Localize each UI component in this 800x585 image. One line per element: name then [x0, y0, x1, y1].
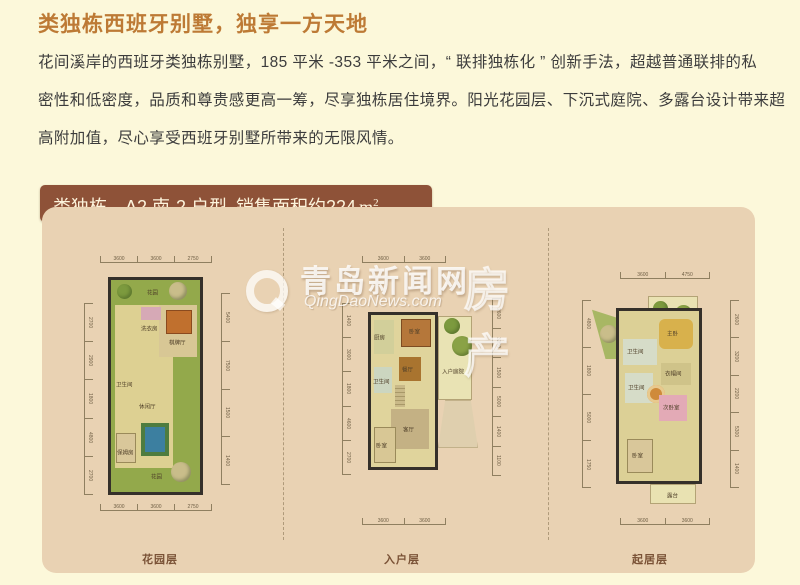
dim-value: 1400: [730, 451, 739, 488]
room-label-bedroom: 卧室: [632, 451, 643, 459]
plan2-dims-left: 1400 3000 1800 4600 2700: [342, 303, 351, 475]
dim-value: 1400: [342, 304, 351, 338]
dim-value: 2750: [175, 256, 212, 263]
dim-value: 1500: [492, 358, 501, 388]
dim-value: 3600: [666, 518, 711, 525]
plan3-dims-left: 4800 1800 5000 1750: [582, 300, 591, 488]
plan1-dims-bottom: 3600 3600 2750: [100, 504, 212, 511]
dim-value: 3200: [492, 329, 501, 359]
terrace-bottom: 露台: [650, 484, 696, 504]
plan2-dims-top: 3600 3600: [362, 256, 446, 263]
dim-value: 5000: [582, 395, 591, 442]
room-label-garden: 花园: [151, 472, 162, 480]
room-label-bedroom: 卧室: [376, 441, 387, 449]
floor-label-garden: 花园层: [130, 551, 190, 567]
plan3-dims-top: 3600 4750: [620, 272, 710, 279]
room-label-garden: 花园: [147, 288, 158, 296]
dim-value: 3600: [101, 504, 138, 511]
dim-value: 1400: [492, 417, 501, 447]
plan3-dims-right: 2600 3200 2200 5300 1400: [730, 300, 739, 488]
intro-line: 高附加值，尽心享受西班牙别墅所带来的无限风情。: [38, 120, 770, 158]
page-title: 类独栋西班牙别墅，独享一方天地: [38, 8, 368, 38]
plan3-dims-bottom: 3600 3600: [620, 518, 710, 525]
room-label-second: 次卧室: [663, 403, 680, 411]
dim-value: 3600: [101, 256, 138, 263]
room-label-lounge: 休闲厅: [139, 402, 156, 410]
page: 类独栋西班牙别墅，独享一方天地 花间溪岸的西班牙类独栋别墅，185 平米 -35…: [0, 0, 800, 585]
dim-value: 5400: [221, 294, 230, 342]
stairs: [395, 385, 405, 407]
plan1-dims-right: 5400 7500 1500 1400: [221, 293, 230, 485]
dim-value: 4600: [342, 407, 351, 441]
dim-value: 5300: [730, 413, 739, 450]
room-laundry-area: [141, 307, 161, 320]
dim-value: 2750: [175, 504, 212, 511]
dim-value: 5000: [492, 388, 501, 418]
room-label-terrace: 露台: [667, 491, 678, 499]
dim-value: 2700: [342, 441, 351, 475]
dim-value: 4800: [582, 301, 591, 348]
plan-separator-line: [283, 228, 284, 540]
dim-value: 1100: [492, 447, 501, 477]
pool: [141, 423, 169, 456]
dim-value: 2200: [730, 376, 739, 413]
plan2-dims-bottom: 3600 3600: [362, 518, 446, 525]
room-label-master: 主卧: [667, 329, 678, 337]
dim-value: 7500: [221, 342, 230, 390]
dim-value: 3000: [342, 338, 351, 372]
tree-icon: [444, 318, 460, 334]
room-label-cloak: 衣帽间: [665, 369, 682, 377]
dim-value: 1400: [221, 437, 230, 485]
dim-value: 1750: [582, 441, 591, 488]
dim-value: 3600: [363, 256, 405, 263]
room-label-living: 客厅: [403, 425, 414, 433]
floorplan-entry-level: 厨房 卧室 餐厅 卫生间 客厅 卧室: [368, 312, 438, 470]
floorplan-living-level: 主卧 卫生间 衣帽间 卫生间 次卧室 卧室: [616, 308, 702, 484]
dim-value: 3600: [621, 272, 666, 279]
room-label-kitchen: 厨房: [374, 333, 385, 341]
room-label-game: 棋牌厅: [169, 338, 186, 346]
floor-label-living: 起居层: [620, 551, 680, 567]
dim-value: 1800: [342, 372, 351, 406]
plan2-dims-right: 2600 3200 1500 5000 1400 1100: [492, 298, 501, 476]
dim-value: 1800: [84, 380, 93, 418]
dim-value: 1500: [221, 390, 230, 438]
plan1-dims-left: 2700 2900 1800 4800 2700: [84, 303, 93, 495]
room-label-dining: 餐厅: [402, 365, 413, 373]
dim-value: 3600: [621, 518, 666, 525]
dim-value: 3600: [405, 518, 447, 525]
game-table: [166, 310, 192, 334]
plan-separator-line: [548, 228, 549, 540]
dim-value: 2700: [84, 457, 93, 495]
floorplan-garden-level: 花园 洗衣房 棋牌厅 卫生间 休闲厅 保姆房 花园: [108, 277, 203, 495]
dim-value: 3200: [730, 338, 739, 375]
dim-value: 3600: [138, 504, 175, 511]
dim-value: 2600: [492, 299, 501, 329]
intro-paragraph: 花间溪岸的西班牙类独栋别墅，185 平米 -353 平米之间，“ 联排独栋化 ”…: [38, 44, 770, 158]
dim-value: 3600: [405, 256, 447, 263]
tree-icon: [171, 462, 191, 482]
tree-icon: [169, 282, 187, 300]
dim-value: 2700: [84, 304, 93, 342]
room-label-bath: 卫生间: [116, 380, 133, 388]
dim-value: 4750: [666, 272, 711, 279]
intro-line: 密性和低密度，品质和尊贵感更高一筹，尽享独栋居住境界。阳光花园层、下沉式庭院、多…: [38, 82, 770, 120]
dim-value: 3600: [138, 256, 175, 263]
tree-icon: [452, 336, 472, 356]
tree-icon: [117, 284, 132, 299]
dim-value: 2600: [730, 301, 739, 338]
dim-value: 1800: [582, 348, 591, 395]
room-label-laundry: 洗衣房: [141, 324, 158, 332]
dim-value: 2900: [84, 342, 93, 380]
dim-value: 4800: [84, 419, 93, 457]
room-label-bedroom: 卧室: [409, 327, 420, 335]
room-label-maid: 保姆房: [117, 448, 134, 456]
room-label-courtyard: 入户庭院: [442, 367, 464, 375]
floor-label-entry: 入户层: [372, 551, 432, 567]
room-label-bath: 卫生间: [627, 347, 644, 355]
room-label-bath: 卫生间: [628, 383, 645, 391]
room-label-bath: 卫生间: [373, 377, 390, 385]
plan1-dims-top: 3600 3600 2750: [100, 256, 212, 263]
dim-value: 3600: [363, 518, 405, 525]
intro-line: 花间溪岸的西班牙类独栋别墅，185 平米 -353 平米之间，“ 联排独栋化 ”…: [38, 44, 770, 82]
